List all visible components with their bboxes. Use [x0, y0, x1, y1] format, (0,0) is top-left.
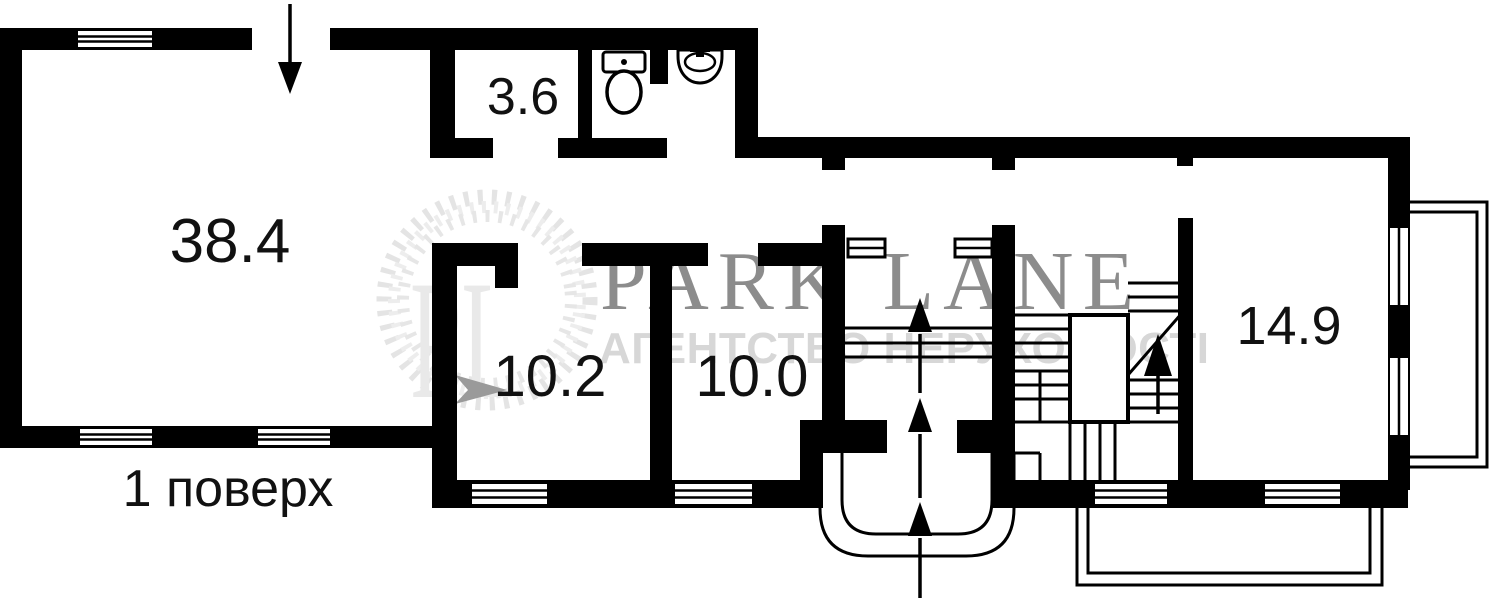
sink-icon: [678, 43, 722, 83]
floor-label: 1 поверх: [123, 460, 334, 518]
toilet-icon: [603, 52, 645, 113]
terrace: [1077, 508, 1382, 585]
transom-window-icon: [848, 239, 885, 257]
window-icon: [675, 484, 752, 504]
window-icon: [472, 484, 547, 504]
door-arrow-icon: [908, 398, 932, 498]
room-label-middle: 10.0: [696, 344, 809, 409]
porch-steps-icon: [820, 453, 1014, 556]
balcony: [1410, 202, 1487, 467]
room-label-right: 14.9: [1236, 296, 1341, 356]
window-icon: [1390, 358, 1408, 435]
window-icon: [80, 429, 152, 445]
window-icon: [1095, 484, 1167, 504]
porch-arrow-icon: [908, 502, 932, 598]
floor-plan: PL PARK LANE PARK LANE АГЕНТСТВО НЕРУХОМ…: [0, 0, 1490, 600]
room-label-left: 10.2: [494, 344, 607, 409]
entrance-arrow-icon: [278, 4, 302, 94]
window-icon: [1390, 228, 1408, 305]
room-label-living: 38.4: [170, 207, 291, 276]
transom-window-icon: [955, 239, 992, 257]
window-icon: [1265, 484, 1340, 504]
room-label-bathroom: 3.6: [487, 68, 559, 126]
window-icon: [78, 31, 152, 47]
window-icon: [258, 429, 330, 445]
stair-void: [1070, 315, 1128, 422]
